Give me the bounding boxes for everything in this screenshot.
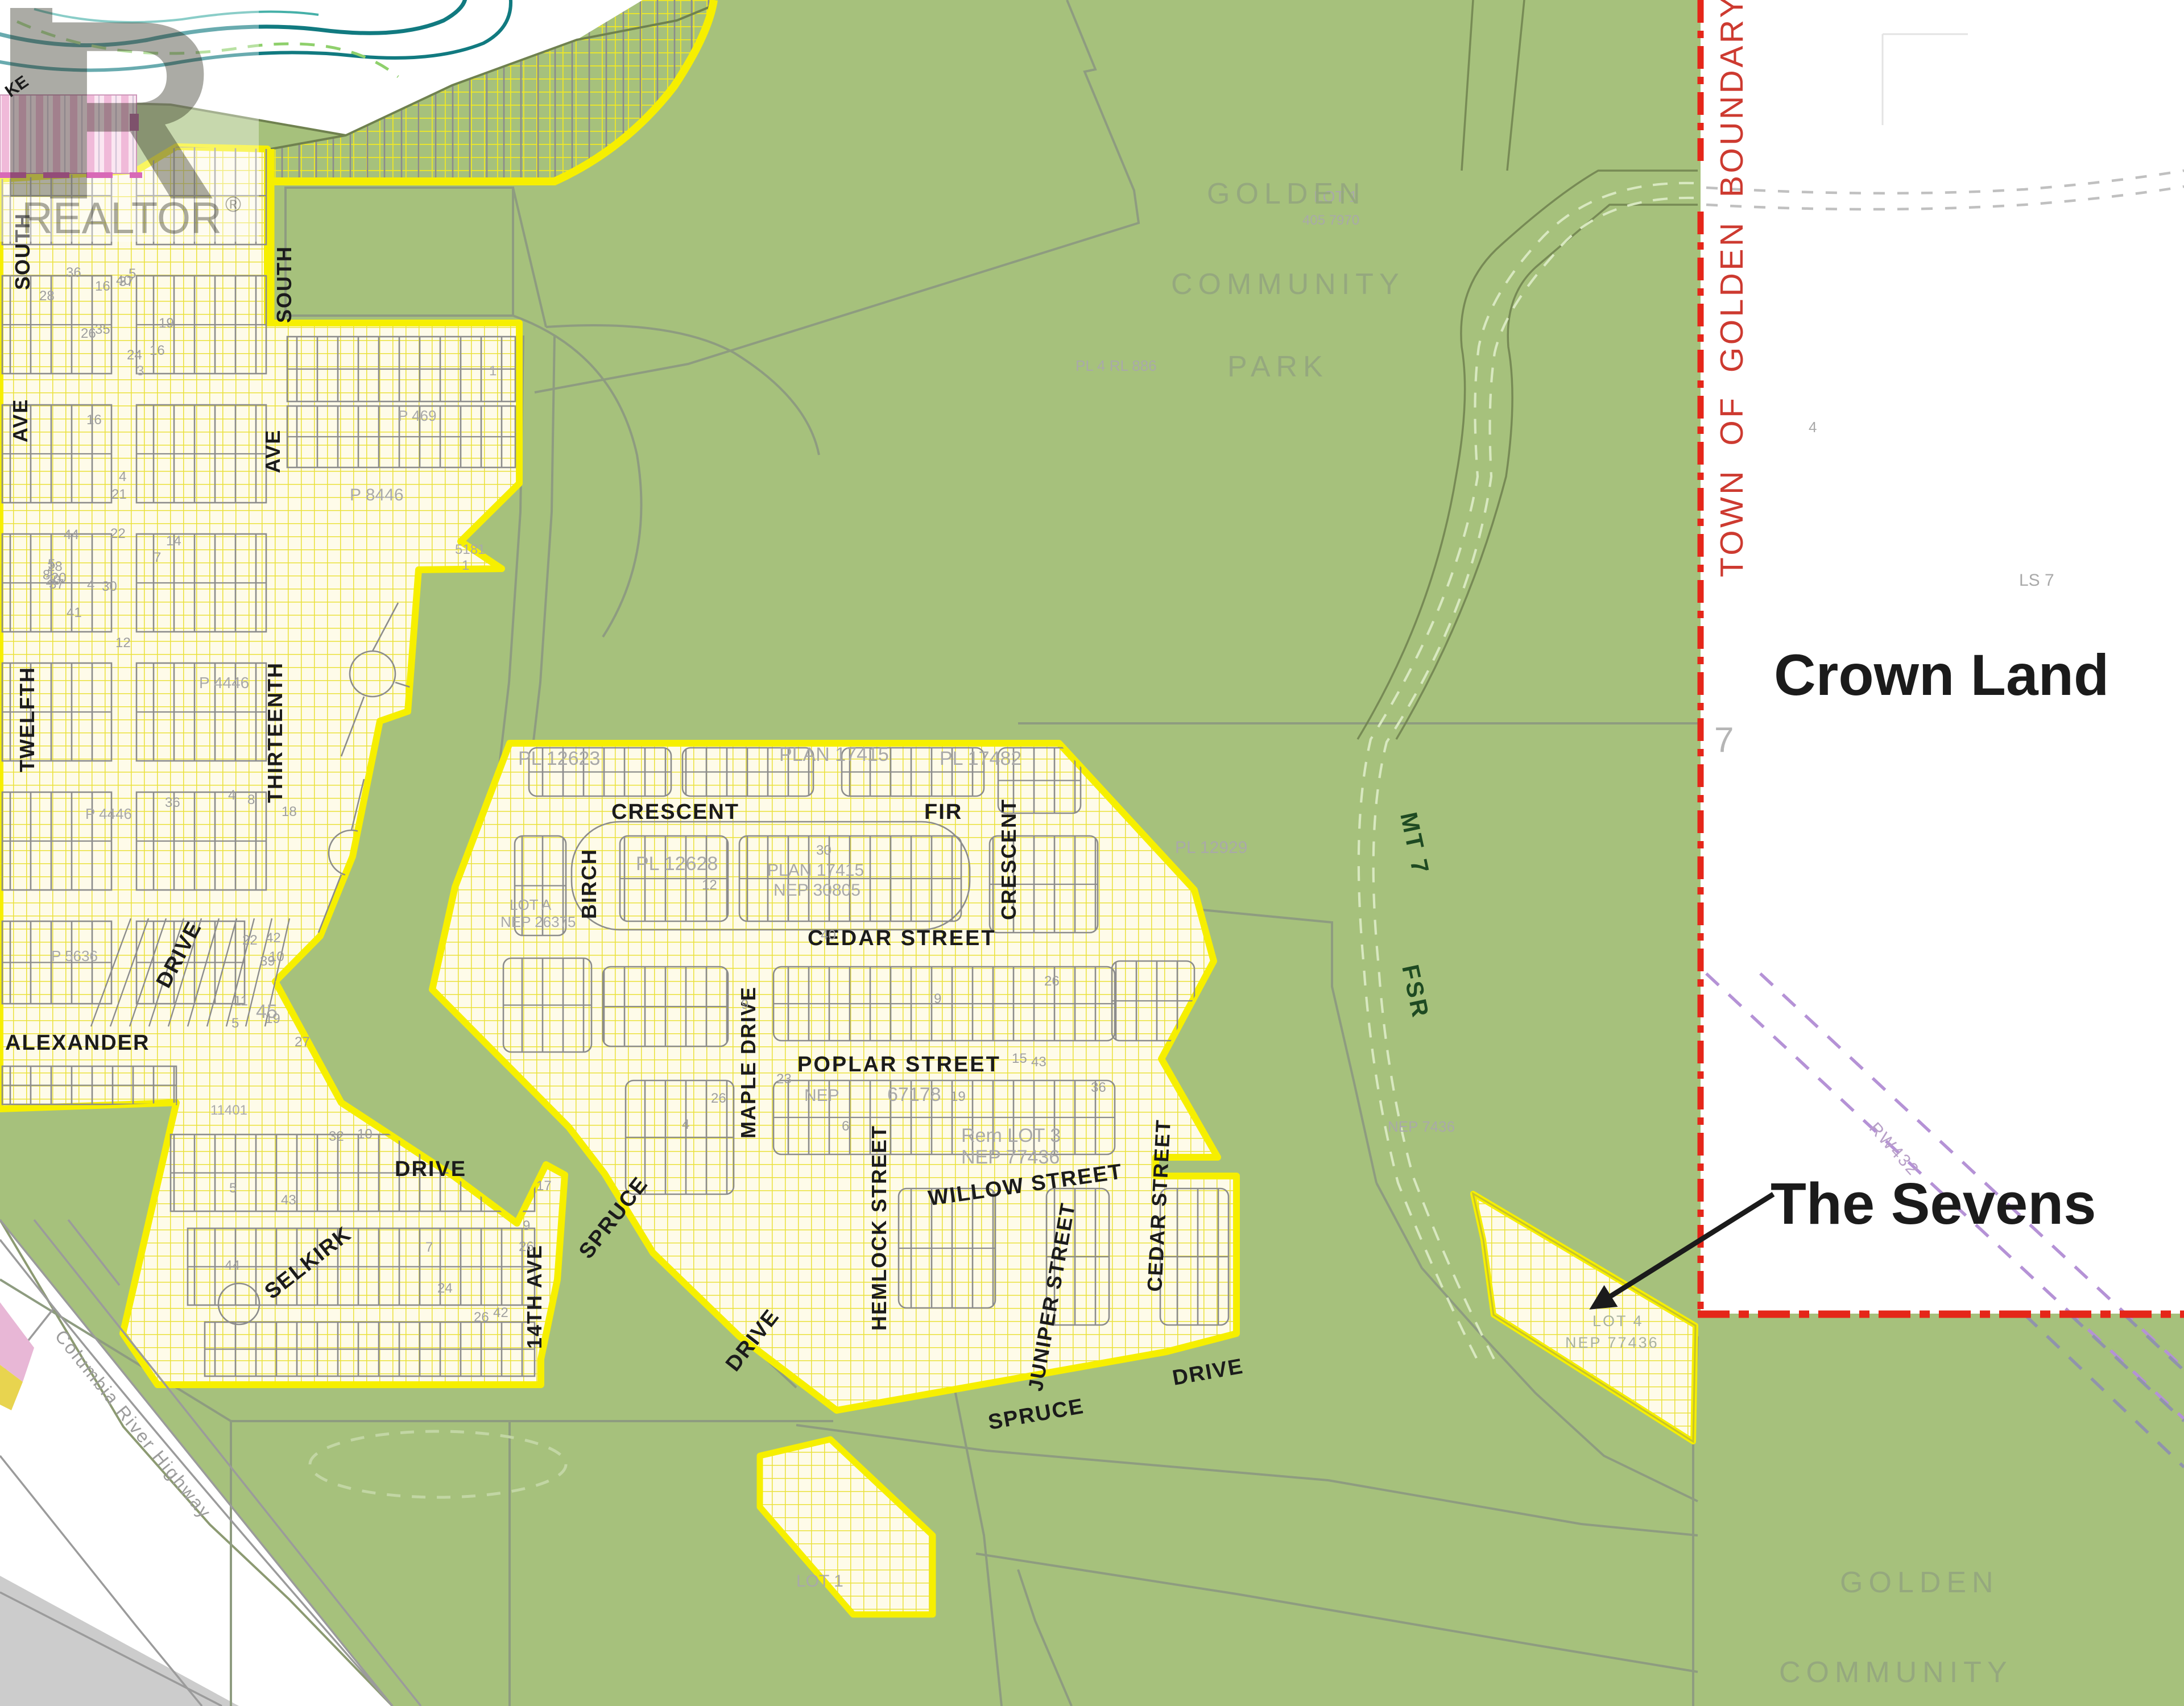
- svg-text:4: 4: [87, 577, 94, 593]
- svg-text:5: 5: [231, 1016, 239, 1031]
- svg-text:44: 44: [64, 527, 79, 543]
- svg-text:FIR: FIR: [924, 800, 962, 824]
- svg-text:27: 27: [295, 1034, 310, 1050]
- svg-text:36: 36: [66, 265, 81, 280]
- svg-text:10: 10: [357, 1127, 373, 1142]
- svg-text:®: ®: [225, 193, 241, 217]
- svg-text:9: 9: [741, 997, 748, 1012]
- svg-text:P 5636: P 5636: [51, 947, 98, 964]
- svg-text:405 7970: 405 7970: [1302, 213, 1359, 228]
- svg-text:Rem LOT 3: Rem LOT 3: [961, 1125, 1061, 1146]
- svg-text:NEP 26375: NEP 26375: [500, 913, 576, 930]
- svg-text:30: 30: [102, 579, 117, 594]
- svg-text:PL 12623: PL 12623: [518, 748, 600, 769]
- svg-text:5: 5: [48, 557, 55, 572]
- svg-text:8: 8: [247, 792, 255, 808]
- svg-text:LOT 4: LOT 4: [1592, 1312, 1644, 1330]
- svg-text:11: 11: [234, 993, 248, 1009]
- svg-text:4: 4: [228, 788, 235, 803]
- svg-text:P 8446: P 8446: [350, 486, 404, 504]
- svg-text:PL 12628: PL 12628: [636, 853, 718, 875]
- svg-text:HEMLOCK STREET: HEMLOCK STREET: [867, 1125, 891, 1331]
- svg-text:14: 14: [166, 533, 181, 549]
- svg-text:19: 19: [159, 316, 174, 331]
- svg-text:16: 16: [95, 279, 110, 294]
- svg-text:43: 43: [1031, 1054, 1046, 1070]
- svg-text:CRESCENT: CRESCENT: [611, 800, 739, 824]
- svg-text:TOWN OF GOLDEN BOUNDARY: TOWN OF GOLDEN BOUNDARY: [1714, 0, 1750, 577]
- svg-text:35: 35: [95, 322, 110, 337]
- svg-text:40: 40: [116, 273, 131, 288]
- svg-text:3: 3: [136, 363, 144, 379]
- svg-text:PLAN 17415: PLAN 17415: [767, 861, 864, 880]
- svg-text:44: 44: [225, 1258, 240, 1273]
- svg-text:NEP 30805: NEP 30805: [773, 881, 861, 900]
- svg-text:P 4446: P 4446: [199, 674, 249, 691]
- svg-text:Crown Land: Crown Land: [1774, 643, 2109, 707]
- svg-text:ALEXANDER: ALEXANDER: [5, 1031, 150, 1055]
- svg-text:The Sevens: The Sevens: [1771, 1171, 2096, 1236]
- svg-text:GOLDEN: GOLDEN: [1207, 177, 1366, 210]
- svg-text:16: 16: [150, 343, 165, 358]
- svg-text:NEP 77436: NEP 77436: [1565, 1334, 1659, 1351]
- svg-text:12: 12: [115, 635, 131, 651]
- svg-text:4: 4: [119, 469, 126, 485]
- svg-text:P 4446: P 4446: [85, 805, 132, 822]
- svg-text:30: 30: [816, 843, 832, 858]
- svg-text:19: 19: [265, 1011, 280, 1026]
- svg-text:20: 20: [45, 573, 61, 588]
- svg-text:PLAN 17415: PLAN 17415: [779, 744, 889, 765]
- svg-text:12: 12: [702, 877, 717, 893]
- svg-text:43: 43: [281, 1192, 296, 1208]
- svg-text:42: 42: [493, 1305, 508, 1320]
- svg-text:REALTOR: REALTOR: [22, 193, 222, 243]
- svg-text:7: 7: [425, 1240, 433, 1255]
- svg-text:PL 4 RL 886: PL 4 RL 886: [1076, 357, 1157, 374]
- svg-text:1: 1: [489, 363, 497, 379]
- svg-text:32: 32: [329, 1129, 344, 1144]
- svg-text:21: 21: [111, 487, 127, 502]
- svg-text:40: 40: [821, 927, 836, 943]
- svg-text:23: 23: [776, 1071, 792, 1087]
- svg-text:9: 9: [523, 1218, 530, 1233]
- svg-text:28: 28: [39, 288, 55, 304]
- svg-text:16: 16: [86, 412, 102, 428]
- svg-text:SOUTH: SOUTH: [272, 246, 296, 323]
- svg-text:5181: 5181: [455, 542, 485, 557]
- svg-text:1: 1: [462, 558, 469, 573]
- svg-text:NEP: NEP: [804, 1086, 839, 1105]
- svg-text:22: 22: [242, 933, 258, 948]
- svg-text:4: 4: [1809, 419, 1817, 436]
- svg-text:TWELFTH: TWELFTH: [15, 666, 39, 772]
- svg-text:22: 22: [110, 526, 126, 541]
- svg-text:7: 7: [1714, 721, 1734, 760]
- svg-text:36: 36: [165, 795, 180, 810]
- svg-text:26: 26: [474, 1310, 489, 1325]
- svg-text:AVE: AVE: [261, 429, 284, 473]
- svg-text:14TH AVE: 14TH AVE: [523, 1244, 546, 1349]
- svg-text:CRESCENT: CRESCENT: [997, 798, 1020, 920]
- svg-text:PL 17482: PL 17482: [940, 748, 1021, 769]
- svg-text:17: 17: [536, 1178, 552, 1194]
- svg-text:4: 4: [682, 1117, 689, 1132]
- svg-text:BIRCH: BIRCH: [577, 848, 601, 919]
- svg-text:LOT 1: LOT 1: [796, 1572, 843, 1591]
- svg-text:P 469: P 469: [398, 407, 436, 424]
- svg-text:LOT A: LOT A: [510, 896, 552, 913]
- svg-text:9: 9: [934, 991, 941, 1007]
- svg-text:36: 36: [1091, 1080, 1106, 1095]
- svg-text:PL 12929: PL 12929: [1175, 838, 1247, 857]
- svg-text:NEP 7436: NEP 7436: [1388, 1118, 1455, 1135]
- svg-text:19: 19: [950, 1089, 966, 1104]
- svg-text:DRIVE: DRIVE: [395, 1157, 466, 1181]
- svg-text:GOLDEN: GOLDEN: [1840, 1566, 1999, 1599]
- svg-text:THIRTEENTH: THIRTEENTH: [263, 662, 287, 803]
- svg-text:AVE: AVE: [9, 399, 32, 442]
- svg-text:26: 26: [519, 1239, 534, 1254]
- svg-text:6: 6: [842, 1119, 849, 1134]
- svg-text:26: 26: [81, 326, 96, 341]
- svg-text:CEDAR STREET: CEDAR STREET: [808, 926, 996, 950]
- svg-text:POPLAR STREET: POPLAR STREET: [797, 1053, 1001, 1076]
- svg-text:NEP 77436: NEP 77436: [961, 1146, 1060, 1168]
- svg-text:LS 7: LS 7: [2019, 571, 2054, 590]
- svg-text:PARK: PARK: [1227, 350, 1329, 383]
- svg-text:7: 7: [154, 550, 161, 565]
- svg-text:COMMUNITY: COMMUNITY: [1171, 268, 1405, 301]
- svg-text:26: 26: [711, 1091, 726, 1106]
- svg-text:18: 18: [282, 804, 297, 819]
- svg-text:24: 24: [437, 1281, 453, 1296]
- svg-text:24: 24: [127, 347, 142, 363]
- svg-text:15: 15: [1012, 1051, 1027, 1066]
- svg-text:5: 5: [229, 1181, 237, 1196]
- svg-text:39: 39: [260, 954, 275, 969]
- svg-text:26: 26: [1044, 974, 1060, 989]
- svg-text:COMMUNITY: COMMUNITY: [1779, 1656, 2013, 1689]
- svg-text:11401: 11401: [210, 1103, 247, 1118]
- svg-text:42: 42: [266, 930, 281, 946]
- svg-text:41: 41: [67, 605, 82, 620]
- svg-text:67178: 67178: [887, 1084, 941, 1105]
